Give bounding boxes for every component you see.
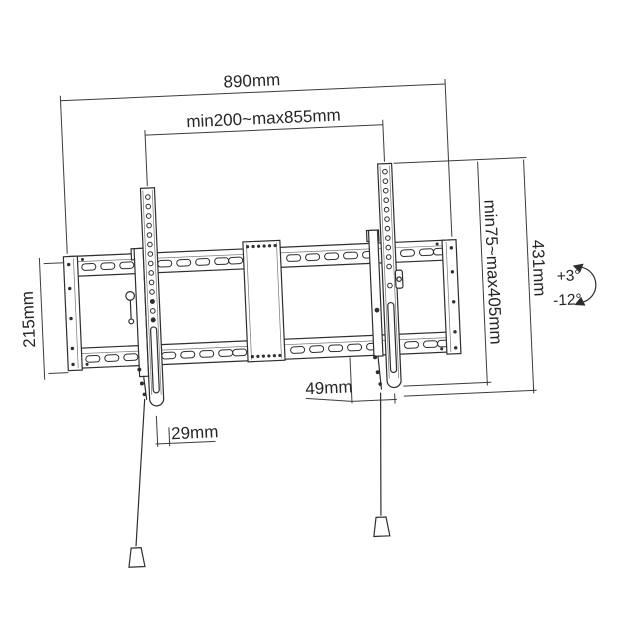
left-tilt-lever <box>126 291 136 324</box>
wall-plate <box>63 233 461 371</box>
dim-depth: 49mm <box>304 355 397 407</box>
dim-vesa-height-range-label: min75~max405mm <box>480 199 505 345</box>
dim-right-heights: min75~max405mm 431mm <box>394 157 554 399</box>
product-dimension-drawing: 890mm min200~max855mm 215mm min75~max405… <box>0 0 625 625</box>
dim-bottom-offset-label: 29mm <box>171 422 219 443</box>
dim-mounting-width-range: min200~max855mm <box>144 104 385 186</box>
dim-plate-height: 215mm <box>16 257 68 381</box>
tilt-indicator: +3° -12° <box>552 263 597 309</box>
dim-bottom-offset: 29mm <box>154 413 219 447</box>
right-pull-handle <box>373 517 390 537</box>
right-pull-cord <box>368 393 390 537</box>
tilt-arc <box>581 267 596 303</box>
dim-bracket-height-label: 431mm <box>528 239 549 296</box>
left-pull-handle <box>128 548 145 568</box>
dim-overall-width-label: 890mm <box>223 70 280 91</box>
dim-plate-height-label: 215mm <box>18 291 39 348</box>
left-tv-bracket-arm <box>121 188 164 407</box>
dim-depth-label: 49mm <box>305 377 353 398</box>
right-tilt-bracket <box>395 270 403 288</box>
left-pull-cord <box>122 399 152 567</box>
tilt-down-label: -12° <box>553 291 582 309</box>
wall-plate-center-plate <box>243 240 285 361</box>
tv-wall-mount-diagram: 890mm min200~max855mm 215mm min75~max405… <box>0 0 625 625</box>
